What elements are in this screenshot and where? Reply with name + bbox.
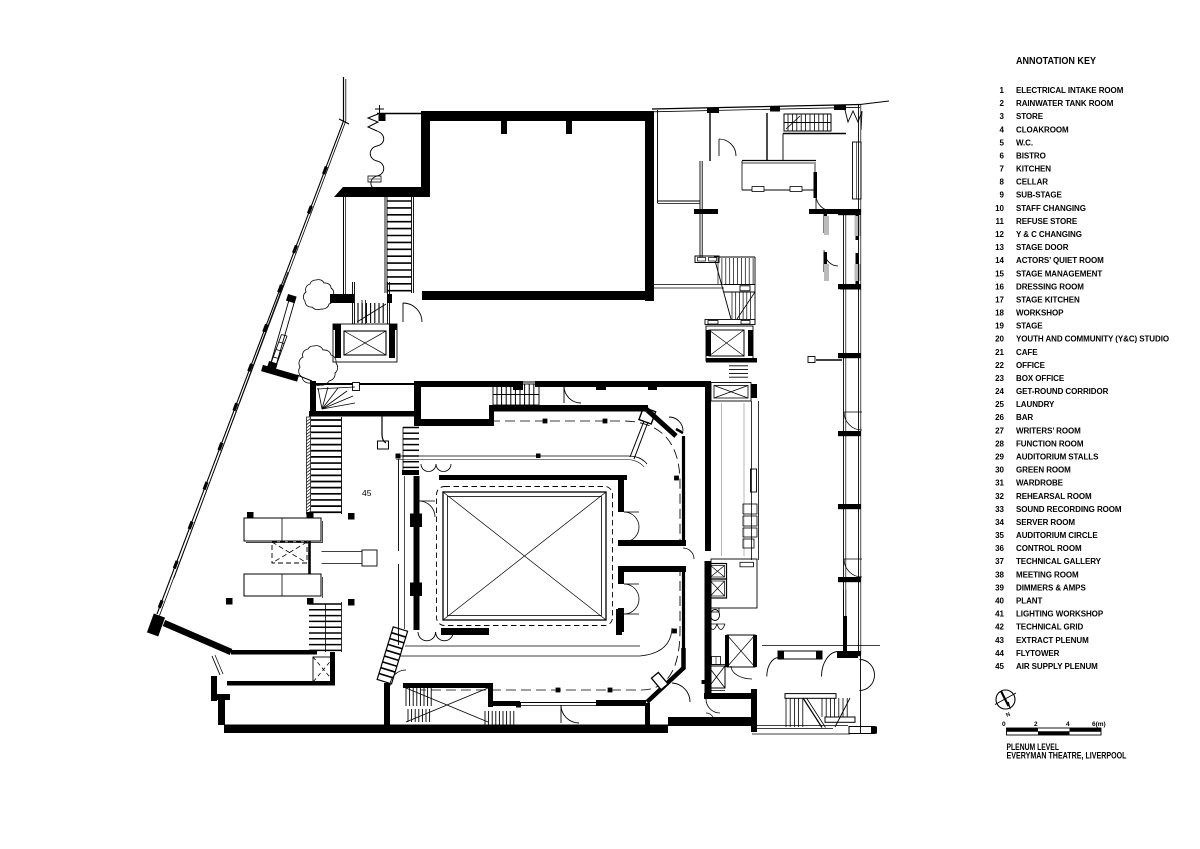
svg-text:26: 26	[995, 413, 1004, 422]
svg-text:OFFICE: OFFICE	[1016, 361, 1046, 370]
svg-text:STAGE KITCHEN: STAGE KITCHEN	[1016, 295, 1080, 304]
svg-text:45: 45	[995, 662, 1004, 671]
svg-text:SUB-STAGE: SUB-STAGE	[1016, 191, 1063, 200]
svg-text:ANNOTATION KEY: ANNOTATION KEY	[1016, 56, 1096, 67]
svg-text:23: 23	[995, 374, 1004, 383]
svg-text:CONTROL ROOM: CONTROL ROOM	[1016, 544, 1082, 553]
svg-text:25: 25	[995, 400, 1004, 409]
svg-text:TECHNICAL GRID: TECHNICAL GRID	[1016, 623, 1083, 632]
svg-text:STORE: STORE	[1016, 112, 1044, 121]
svg-text:7: 7	[1000, 165, 1005, 174]
svg-text:ACTORS’ QUIET ROOM: ACTORS’ QUIET ROOM	[1016, 256, 1104, 265]
svg-text:13: 13	[995, 243, 1004, 252]
svg-text:36: 36	[995, 544, 1004, 553]
svg-text:34: 34	[995, 518, 1004, 527]
svg-text:GET-ROUND CORRIDOR: GET-ROUND CORRIDOR	[1016, 387, 1109, 396]
svg-text:5: 5	[1000, 138, 1005, 147]
svg-text:30: 30	[995, 466, 1004, 475]
svg-text:FLYTOWER: FLYTOWER	[1016, 649, 1060, 658]
svg-text:24: 24	[995, 387, 1004, 396]
svg-text:LAUNDRY: LAUNDRY	[1016, 400, 1055, 409]
svg-text:FUNCTION ROOM: FUNCTION ROOM	[1016, 439, 1084, 448]
svg-text:12: 12	[995, 230, 1004, 239]
svg-text:1: 1	[1000, 86, 1005, 95]
svg-text:29: 29	[995, 453, 1004, 462]
svg-text:WORKSHOP: WORKSHOP	[1016, 309, 1064, 318]
svg-text:STAGE DOOR: STAGE DOOR	[1016, 243, 1069, 252]
svg-text:SERVER ROOM: SERVER ROOM	[1016, 518, 1075, 527]
svg-text:2: 2	[1000, 99, 1005, 108]
svg-text:9: 9	[1000, 191, 1005, 200]
svg-text:REHEARSAL ROOM: REHEARSAL ROOM	[1016, 492, 1092, 501]
svg-text:AUDITORIUM CIRCLE: AUDITORIUM CIRCLE	[1016, 531, 1098, 540]
svg-text:38: 38	[995, 570, 1004, 579]
svg-text:18: 18	[995, 309, 1004, 318]
svg-text:AUDITORIUM STALLS: AUDITORIUM STALLS	[1016, 453, 1099, 462]
svg-text:MEETING ROOM: MEETING ROOM	[1016, 570, 1079, 579]
svg-text:W.C.: W.C.	[1016, 138, 1033, 147]
svg-text:33: 33	[995, 505, 1004, 514]
svg-text:31: 31	[995, 479, 1004, 488]
svg-text:39: 39	[995, 583, 1004, 592]
svg-text:WARDROBE: WARDROBE	[1016, 479, 1064, 488]
svg-text:21: 21	[995, 348, 1004, 357]
svg-text:KITCHEN: KITCHEN	[1016, 165, 1051, 174]
svg-text:6(m): 6(m)	[1092, 721, 1106, 728]
svg-text:41: 41	[995, 610, 1004, 619]
svg-text:4: 4	[1066, 721, 1070, 728]
svg-text:BOX OFFICE: BOX OFFICE	[1016, 374, 1065, 383]
svg-text:17: 17	[995, 295, 1004, 304]
svg-text:CLOAKROOM: CLOAKROOM	[1016, 125, 1069, 134]
svg-text:PLANT: PLANT	[1016, 597, 1042, 606]
svg-text:ELECTRICAL INTAKE ROOM: ELECTRICAL INTAKE ROOM	[1016, 86, 1124, 95]
svg-text:YOUTH AND COMMUNITY (Y&C) STUD: YOUTH AND COMMUNITY (Y&C) STUDIO	[1016, 335, 1169, 344]
svg-text:45: 45	[362, 488, 372, 498]
svg-text:STAGE MANAGEMENT: STAGE MANAGEMENT	[1016, 269, 1102, 278]
svg-text:22: 22	[995, 361, 1004, 370]
svg-text:4: 4	[1000, 125, 1005, 134]
svg-text:RAINWATER TANK ROOM: RAINWATER TANK ROOM	[1016, 99, 1114, 108]
svg-text:BISTRO: BISTRO	[1016, 151, 1046, 160]
svg-text:CAFE: CAFE	[1016, 348, 1038, 357]
svg-text:DIMMERS & AMPS: DIMMERS & AMPS	[1016, 583, 1086, 592]
svg-text:8: 8	[1000, 178, 1005, 187]
svg-text:STAFF CHANGING: STAFF CHANGING	[1016, 204, 1086, 213]
svg-text:40: 40	[995, 597, 1004, 606]
svg-text:EXTRACT PLENUM: EXTRACT PLENUM	[1016, 636, 1089, 645]
svg-text:35: 35	[995, 531, 1004, 540]
svg-text:0: 0	[1002, 721, 1006, 728]
svg-text:44: 44	[995, 649, 1004, 658]
svg-text:WRITERS’ ROOM: WRITERS’ ROOM	[1016, 426, 1081, 435]
svg-text:10: 10	[995, 204, 1004, 213]
svg-text:Y & C CHANGING: Y & C CHANGING	[1016, 230, 1082, 239]
svg-text:TECHNICAL GALLERY: TECHNICAL GALLERY	[1016, 557, 1102, 566]
svg-text:28: 28	[995, 439, 1004, 448]
svg-text:2: 2	[1034, 721, 1038, 728]
svg-text:3: 3	[1000, 112, 1005, 121]
svg-text:BAR: BAR	[1016, 413, 1033, 422]
svg-text:20: 20	[995, 335, 1004, 344]
svg-text:15: 15	[995, 269, 1004, 278]
svg-text:DRESSING ROOM: DRESSING ROOM	[1016, 282, 1084, 291]
svg-text:SOUND RECORDING ROOM: SOUND RECORDING ROOM	[1016, 505, 1122, 514]
svg-text:CELLAR: CELLAR	[1016, 178, 1048, 187]
svg-text:6: 6	[1000, 151, 1005, 160]
svg-text:27: 27	[995, 426, 1004, 435]
svg-text:32: 32	[995, 492, 1004, 501]
svg-text:14: 14	[995, 256, 1004, 265]
svg-text:19: 19	[995, 322, 1004, 331]
svg-text:LIGHTING WORKSHOP: LIGHTING WORKSHOP	[1016, 610, 1104, 619]
svg-text:REFUSE STORE: REFUSE STORE	[1016, 217, 1078, 226]
svg-text:GREEN ROOM: GREEN ROOM	[1016, 466, 1071, 475]
svg-text:STAGE: STAGE	[1016, 322, 1043, 331]
svg-text:EVERYMAN THEATRE, LIVERPOOL: EVERYMAN THEATRE, LIVERPOOL	[1007, 751, 1127, 761]
svg-text:43: 43	[995, 636, 1004, 645]
svg-text:AIR SUPPLY PLENUM: AIR SUPPLY PLENUM	[1016, 662, 1098, 671]
svg-text:16: 16	[995, 282, 1004, 291]
svg-text:11: 11	[996, 217, 1005, 226]
svg-text:42: 42	[995, 623, 1004, 632]
svg-text:37: 37	[995, 557, 1004, 566]
